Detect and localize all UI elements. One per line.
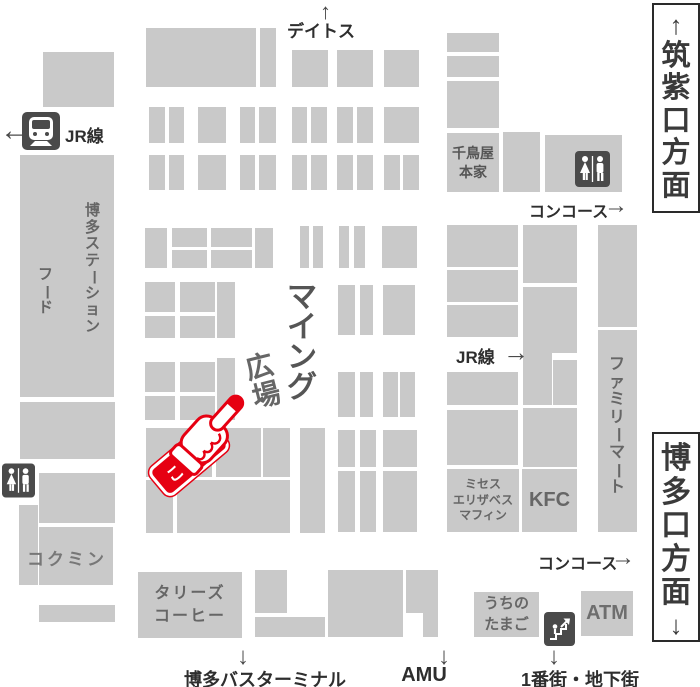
map-block: [255, 570, 287, 613]
map-block: [447, 81, 499, 128]
map-block: [337, 107, 353, 143]
hakata-station-food-label: 博多ステーション: [85, 203, 100, 335]
bus-terminal-label: 博多バスターミナル: [180, 666, 350, 687]
map-block: [360, 471, 376, 532]
map-block: [292, 50, 328, 87]
chidoriya-honke-label: 千鳥屋 本家: [452, 144, 494, 180]
right-arrow-icon: →: [604, 194, 628, 218]
map-block: [260, 28, 276, 87]
map-block: [180, 316, 215, 338]
down-arrow-icon: ↓: [670, 612, 683, 638]
map-block: [523, 225, 577, 283]
escalator-icon: [544, 612, 575, 646]
right-arrow-icon: →: [611, 546, 635, 570]
deitos-label: デイトス: [283, 17, 359, 42]
map-block: [360, 372, 373, 417]
map-block: [198, 107, 226, 143]
map-block: [311, 155, 327, 190]
map-block: [149, 155, 165, 190]
map-block: [503, 132, 540, 192]
mrs-elizabeth-muffin-block: ミセス エリザベス マフィン: [447, 469, 519, 532]
jr-line-left-label: JR線: [65, 122, 104, 147]
map-block: [259, 155, 276, 190]
map-block: [211, 250, 252, 268]
kokumin-label: コクミン: [19, 545, 115, 570]
underground-mall-label: 1番街・地下街: [512, 666, 648, 687]
map-block: [145, 282, 175, 312]
uchino-tamago-label: うちの たまご: [484, 594, 529, 635]
tullys-coffee-block: タリーズ コーヒー: [138, 572, 242, 638]
map-block: [255, 228, 273, 268]
station-map: ↑ デイトス ↑ 筑紫口方面 博多口方面 ↓ ← JR線 博多ステーション フー…: [0, 0, 700, 687]
map-block: [145, 228, 167, 268]
map-block: [300, 226, 309, 268]
map-block: [339, 226, 349, 268]
map-block: [383, 285, 415, 335]
hakata-station-food-label2: フード: [38, 267, 53, 317]
map-block: [20, 402, 115, 459]
chidoriya-honke-block: 千鳥屋 本家: [447, 133, 499, 192]
map-block: [384, 155, 400, 190]
hakata-exit-label: 博多口方面: [661, 442, 691, 610]
map-block: [180, 282, 215, 312]
map-block: [447, 372, 518, 405]
map-block: [169, 107, 184, 143]
hakata-exit-box: 博多口方面 ↓: [652, 432, 700, 642]
map-block: [423, 613, 438, 637]
chikushi-exit-label: 筑紫口方面: [661, 40, 690, 202]
map-block: [39, 473, 115, 523]
map-block: [211, 228, 252, 247]
pointer-hand-icon: [180, 386, 242, 478]
map-block: [598, 225, 637, 327]
map-block: [338, 471, 355, 532]
map-block: [447, 305, 518, 337]
map-block: [523, 322, 577, 353]
map-block: [292, 155, 307, 190]
map-block: [447, 225, 518, 267]
mrs-elizabeth-muffin-label: ミセス エリザベス マフィン: [453, 477, 513, 524]
map-block: [447, 56, 499, 77]
chikushi-exit-box: ↑ 筑紫口方面: [652, 3, 700, 213]
map-block: [383, 471, 417, 532]
map-block: [553, 360, 577, 405]
map-block: [328, 570, 403, 637]
map-block: [338, 285, 355, 335]
map-block: [447, 410, 518, 465]
hakata-station-food-block: 博多ステーション フード: [20, 155, 114, 397]
map-block: [384, 50, 419, 87]
map-block: [523, 287, 577, 322]
map-block: [145, 362, 175, 392]
map-block: [240, 155, 255, 190]
map-block: [149, 107, 165, 143]
map-block: [337, 155, 353, 190]
map-block: [383, 372, 398, 417]
map-block: [357, 107, 373, 143]
atm-label: ATM: [586, 602, 628, 625]
map-block: [383, 430, 417, 467]
map-block: [338, 372, 355, 417]
uchino-tamago-block: うちの たまご: [474, 592, 539, 637]
map-block: [447, 270, 518, 302]
jr-line-right-label: JR線: [456, 343, 495, 368]
map-block: [406, 570, 438, 613]
restroom-icon: [2, 463, 35, 498]
map-block: [240, 107, 255, 143]
map-block: [217, 282, 235, 338]
map-block: [382, 226, 417, 268]
map-block: [300, 428, 325, 533]
map-block: [354, 226, 365, 268]
familymart-block: ファミリーマート: [598, 330, 637, 532]
map-block: [146, 28, 256, 87]
ming-title: マイング: [284, 283, 320, 403]
map-block: [169, 155, 184, 190]
tullys-coffee-label: タリーズ コーヒー: [154, 582, 226, 628]
map-block: [145, 396, 175, 420]
map-block: [384, 107, 419, 143]
concourse-lower-label: コンコース: [538, 550, 617, 574]
train-icon: [22, 112, 60, 150]
map-block: [198, 155, 226, 190]
map-block: [360, 430, 376, 467]
map-block: [523, 408, 577, 467]
map-block: [263, 428, 290, 477]
map-block: [403, 155, 419, 190]
map-block: [43, 52, 114, 107]
map-block: [447, 33, 499, 52]
up-arrow-icon: ↑: [670, 12, 683, 38]
right-arrow-icon: →: [503, 339, 529, 365]
kfc-label: KFC: [529, 489, 570, 512]
map-block: [357, 155, 373, 190]
map-block: [311, 107, 327, 143]
map-block: [313, 226, 323, 268]
map-block: [360, 285, 373, 335]
map-block: [177, 480, 290, 533]
concourse-upper-label: コンコース: [529, 198, 608, 222]
map-block: [400, 372, 415, 417]
map-block: [255, 617, 325, 637]
amu-label: AMU: [396, 664, 452, 687]
map-block: [145, 316, 175, 338]
atm-block: ATM: [581, 591, 633, 636]
map-block: [259, 107, 276, 143]
kfc-block: KFC: [522, 469, 577, 532]
map-block: [337, 50, 373, 87]
familymart-label: ファミリーマート: [609, 356, 625, 497]
map-block: [39, 605, 115, 622]
restroom-icon: [575, 151, 610, 187]
map-block: [172, 228, 207, 247]
map-block: [292, 107, 307, 143]
map-block: [172, 250, 207, 268]
map-block: [338, 430, 355, 467]
